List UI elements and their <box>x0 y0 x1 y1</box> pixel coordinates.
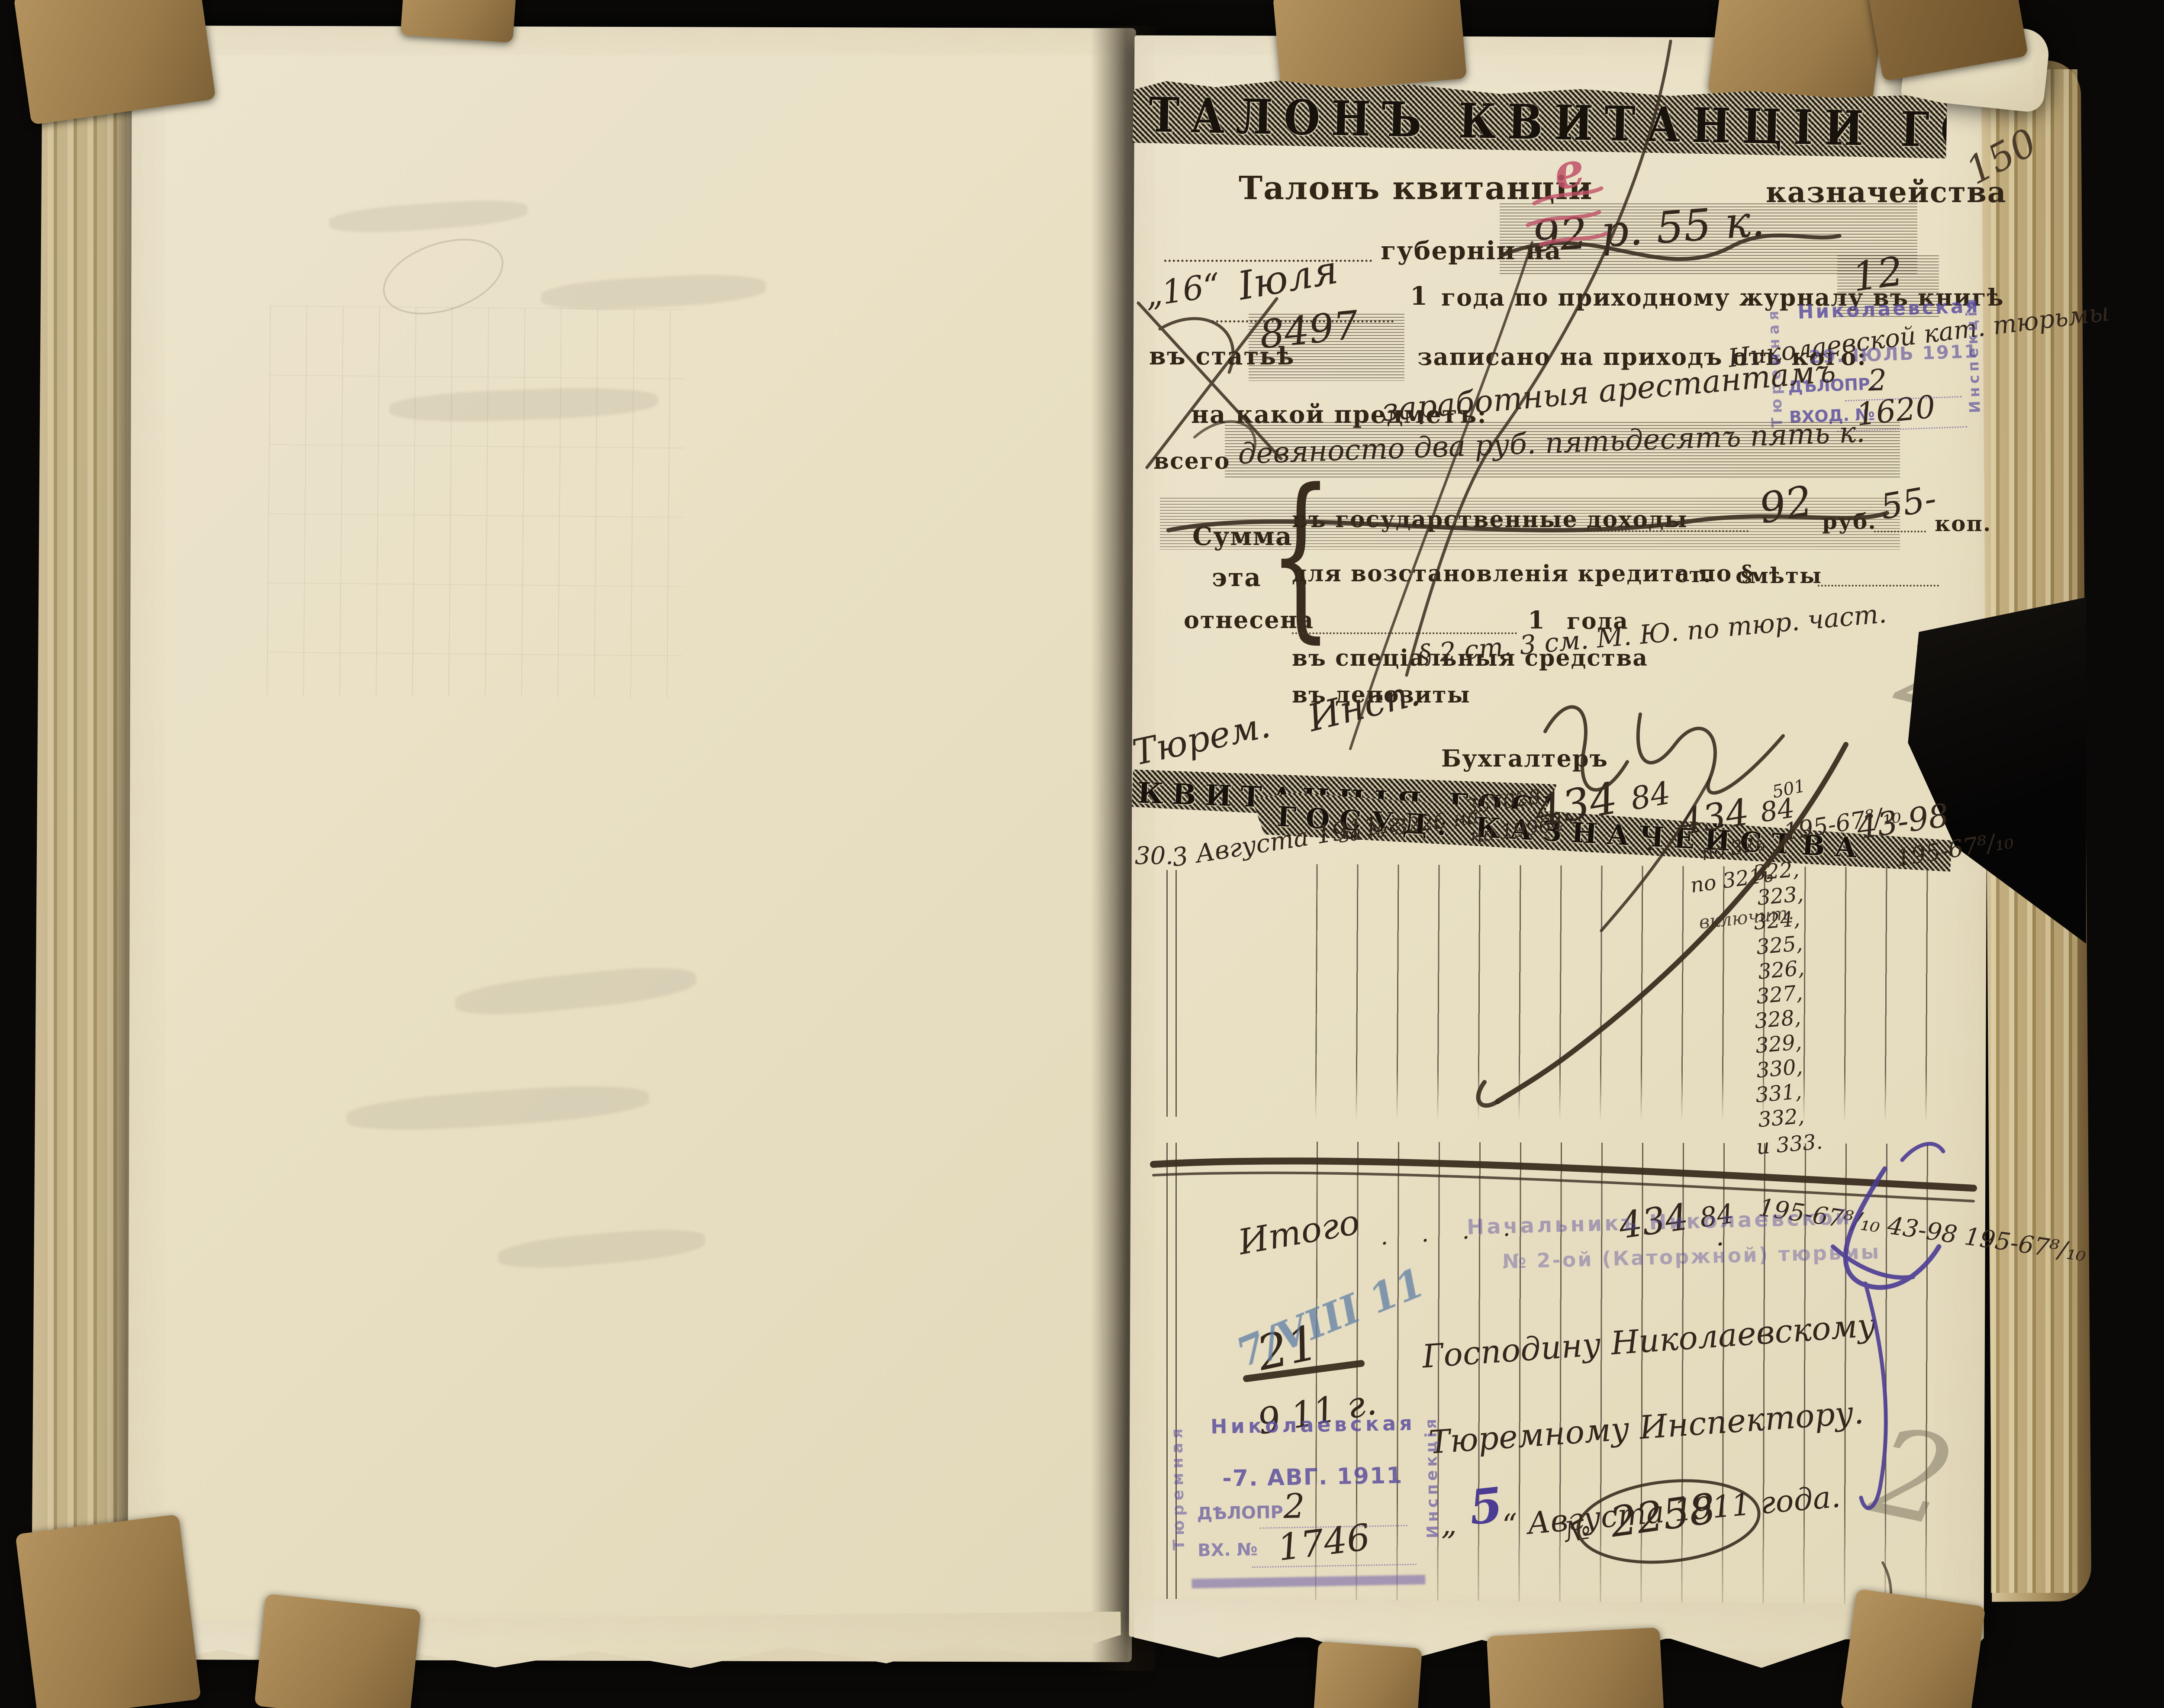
dotted-leader <box>1580 517 1749 532</box>
article-number: 326, <box>1757 956 1805 984</box>
book-number-handwritten: 12 <box>1849 248 1906 300</box>
left-page <box>128 26 1136 1662</box>
ledger-sum1-kop: 84 <box>1628 774 1673 817</box>
kraft-tongue <box>1840 1589 1986 1708</box>
stamp-august-left-vertical: Тюремная <box>1168 1424 1188 1550</box>
ledger-row-no: 30. <box>1135 842 1173 870</box>
ledger-vertical-rules-upper <box>1315 864 1939 1123</box>
stamp-august-dotted-line <box>1252 1564 1417 1568</box>
stamp-august-vh-label: ВХ. № <box>1198 1540 1258 1560</box>
stamp-august: Тюремная Инспекція Николаевская -7. АВГ.… <box>1176 1411 1439 1584</box>
article-number: 329, <box>1755 1030 1803 1058</box>
kop-label: коп. <box>1935 511 1991 536</box>
ledger-left-double-rule <box>1166 1143 1177 1632</box>
ledger-left-double-rule <box>1166 870 1177 1117</box>
address-quote-open: „ <box>1441 1506 1457 1542</box>
kraft-tongue <box>1313 1641 1422 1708</box>
sum-word-2: эта <box>1212 563 1262 592</box>
ledger-dot: . <box>1645 822 1654 858</box>
article-number: 325, <box>1755 931 1803 959</box>
income-rub-handwritten: 92 <box>1755 476 1816 533</box>
left-page-bleedthrough-grid <box>267 306 686 699</box>
article-number: 331, <box>1755 1079 1803 1107</box>
left-page-stack-lines <box>48 61 138 1645</box>
smeta-label: смѣты <box>1736 563 1822 588</box>
kraft-tongue <box>15 1514 201 1708</box>
stamp-august-date: -7. АВГ. 1911 <box>1222 1463 1403 1492</box>
dotted-leader <box>1292 621 1517 634</box>
stamp-august-delopr-label: ДѢЛОПР. <box>1197 1502 1290 1524</box>
kraft-scrap <box>1273 0 1467 94</box>
stamp-warden: Начальникъ Николаевской № 2-ой (Каторжно… <box>1466 1205 1881 1274</box>
article-number: 324, <box>1753 906 1801 935</box>
stamp-july-delopr-value: 2 <box>1868 363 1887 398</box>
article-number: 327, <box>1755 980 1803 1009</box>
stamp-august-right-vertical: Инспекція <box>1422 1415 1442 1539</box>
talon-title-left: Талонъ квитанціи <box>1239 170 1593 207</box>
article-number: 332, <box>1757 1104 1805 1132</box>
article-number: 323, <box>1756 882 1804 910</box>
rub-label: руб. <box>1822 509 1877 534</box>
article-number: 330, <box>1755 1054 1803 1083</box>
stamp-august-org: Николаевская <box>1211 1412 1416 1438</box>
dotted-leader <box>1874 519 1926 532</box>
stamp-august-delopr-value: 2 <box>1283 1487 1305 1526</box>
dotted-leader <box>1818 574 1939 587</box>
photo-of-archival-book: ТАЛОНЪ КВИТАНЦІИ ГОСУД. КАЗНАЧЕЙСТВА 150… <box>0 0 2164 1708</box>
outgoing-prefix: № <box>1562 1513 1593 1549</box>
accountant-label: Бухгалтеръ <box>1441 744 1608 772</box>
year-printed: 1 <box>1410 281 1428 311</box>
article-number: 322, <box>1752 857 1800 885</box>
st-label: ст. <box>1675 562 1712 587</box>
total-label: всего <box>1153 448 1230 474</box>
kraft-tongue <box>254 1594 421 1708</box>
address-day-purple: 5 <box>1466 1476 1505 1535</box>
kraft-tongue <box>1487 1627 1664 1708</box>
article-number: 328, <box>1754 1005 1802 1033</box>
